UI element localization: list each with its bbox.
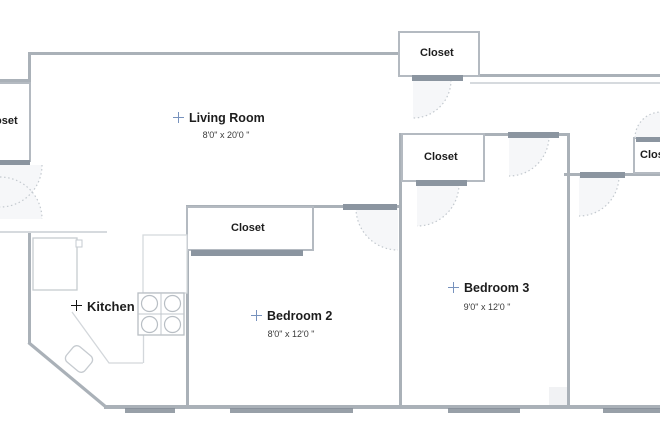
- door-opening-marker: [580, 172, 625, 178]
- kitchen-label: Kitchen: [71, 299, 135, 314]
- wall-diagonal: [29, 343, 107, 408]
- door-opening-marker: [343, 204, 397, 210]
- room-name: Bedroom 2: [267, 309, 332, 324]
- closet-bedroom-2-label: Closet: [231, 222, 265, 234]
- bedroom-3-dimensions: 9'0" x 12'0 ": [452, 302, 522, 312]
- closet-left-label: Closet: [0, 115, 18, 127]
- bedroom-2-dimensions: 8'0" x 12'0 ": [256, 329, 326, 339]
- floor-plan: Living Room 8'0" x 20'0 " Kitchen Bedroo…: [0, 0, 660, 440]
- room-name: Kitchen: [87, 299, 135, 314]
- refrigerator: [33, 238, 77, 290]
- door-opening-marker: [508, 132, 559, 138]
- room-name: Bedroom 3: [464, 281, 529, 296]
- window-marker: [230, 408, 353, 413]
- closet-bedroom-3-label: Closet: [424, 151, 458, 163]
- door-opening-marker: [0, 160, 30, 166]
- bedroom-2-label: Bedroom 2: [251, 309, 332, 324]
- door-opening-marker: [412, 75, 463, 81]
- door-opening-marker: [636, 137, 660, 142]
- window-marker: [603, 408, 660, 413]
- room-marker-plus-icon: [251, 310, 262, 321]
- door-swing-arcs: [0, 80, 660, 250]
- closet-top-label: Closet: [420, 47, 454, 59]
- door-swing-fills: [0, 80, 660, 250]
- refrigerator-handle: [76, 240, 82, 247]
- stove: [138, 293, 184, 335]
- door-opening-marker: [416, 180, 467, 186]
- plan-graphics: [0, 0, 660, 440]
- room-name: Living Room: [189, 111, 265, 126]
- room-marker-plus-icon: [173, 112, 184, 123]
- window-marker: [448, 408, 520, 413]
- living-room-dimensions: 8'0" x 20'0 ": [183, 130, 269, 140]
- kitchen-counter-strip: [143, 235, 187, 293]
- living-room-label: Living Room: [173, 111, 265, 126]
- kitchen-sink: [63, 344, 94, 375]
- room-marker-plus-icon: [71, 300, 82, 311]
- room-marker-plus-icon: [448, 282, 459, 293]
- door-opening-marker: [191, 250, 303, 256]
- bedroom-3-label: Bedroom 3: [448, 281, 529, 296]
- window-marker: [125, 408, 175, 413]
- closet-right-label: Closet: [640, 149, 660, 161]
